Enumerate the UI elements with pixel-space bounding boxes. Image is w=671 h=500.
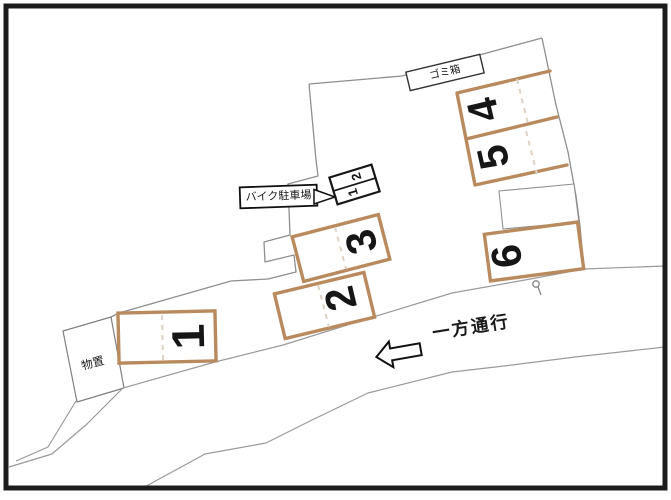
pole-marker-tail — [538, 287, 541, 295]
stall-4-number: 4 — [457, 93, 508, 127]
one-way-arrow-shape — [374, 336, 423, 369]
one-way-arrow — [374, 336, 423, 369]
stall-5-number: 5 — [467, 140, 518, 173]
stall-5-dash — [526, 131, 537, 174]
stall-1: 1 — [118, 311, 216, 363]
stall-1-number: 1 — [162, 323, 215, 350]
parking-map: 1 2 3 4 5 6 2 1 ゴミ箱 — [0, 0, 671, 500]
road-lower-edge — [139, 347, 665, 490]
stalls-4-5: 4 5 — [457, 71, 567, 185]
one-way-text: 一方通行 — [431, 311, 511, 343]
pole-marker — [533, 281, 541, 295]
stall-4-dash — [517, 79, 528, 124]
bike-parking-label: バイク駐車場 — [240, 185, 335, 209]
bike-parking-callout-wedge — [314, 190, 335, 205]
stall-2: 2 — [274, 272, 374, 338]
road-spur-edge — [16, 401, 76, 461]
one-way-marking: 一方通行 — [374, 311, 511, 370]
stall-6: 6 — [480, 222, 584, 281]
bike-parking-box: 2 1 — [329, 165, 379, 205]
pole-marker-circle — [533, 281, 539, 287]
trash-box-label: ゴミ箱 — [406, 54, 484, 90]
